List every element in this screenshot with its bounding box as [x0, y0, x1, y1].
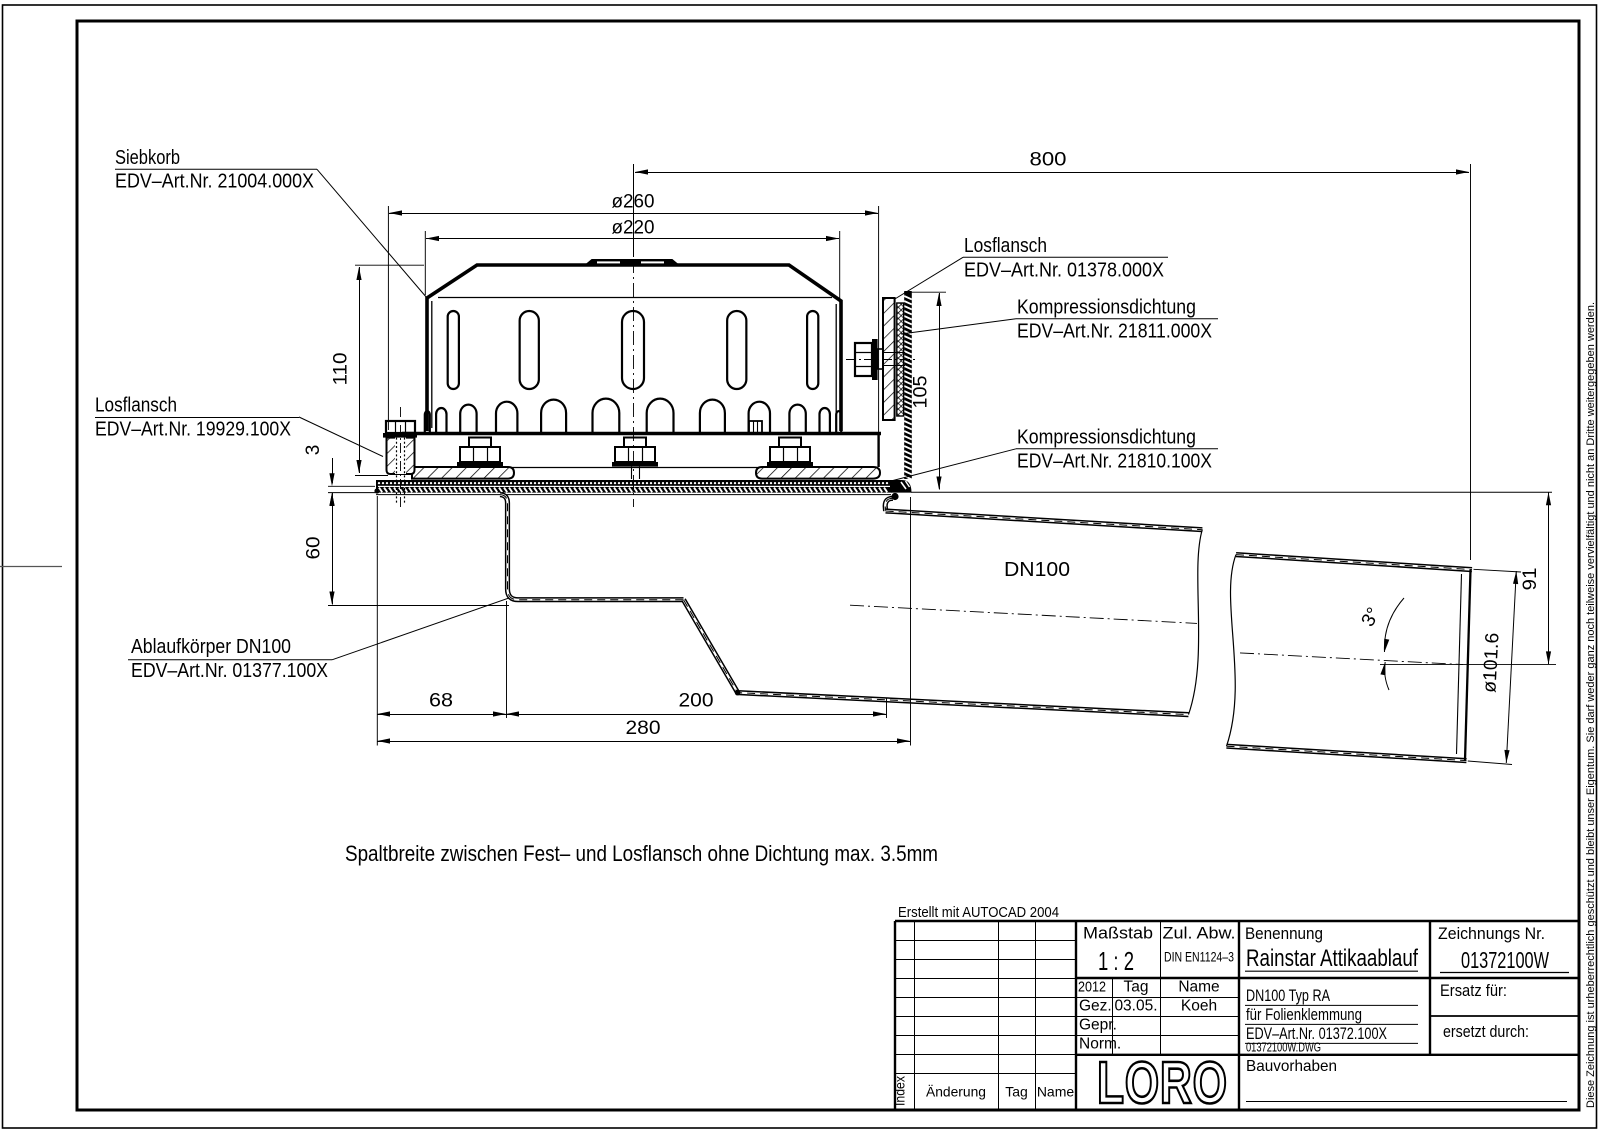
svg-text:Zeichnungs Nr.: Zeichnungs Nr. [1438, 924, 1545, 943]
svg-text:91: 91 [1520, 568, 1541, 591]
svg-text:110: 110 [331, 353, 352, 386]
svg-text:Gez.: Gez. [1079, 998, 1112, 1015]
svg-text:Kompressionsdichtung: Kompressionsdichtung [1017, 297, 1196, 319]
svg-text:Tag: Tag [1124, 979, 1149, 996]
svg-text:Erstellt mit AUTOCAD 2004: Erstellt mit AUTOCAD 2004 [898, 904, 1059, 921]
svg-text:200: 200 [679, 691, 714, 712]
svg-text:Losflansch: Losflansch [95, 395, 177, 417]
svg-text:Ablaufkörper DN100: Ablaufkörper DN100 [131, 636, 291, 658]
svg-text:LORO: LORO [1097, 1051, 1228, 1117]
svg-text:ø101.6: ø101.6 [1479, 632, 1503, 693]
svg-text:DN100 Typ RA: DN100 Typ RA [1246, 986, 1330, 1005]
svg-text:Bauvorhaben: Bauvorhaben [1246, 1058, 1337, 1075]
svg-text:Maßstab: Maßstab [1083, 924, 1153, 943]
svg-text:ø260: ø260 [612, 192, 655, 213]
svg-text:EDV–Art.Nr. 21811.000X: EDV–Art.Nr. 21811.000X [1017, 321, 1212, 343]
svg-text:Tag: Tag [1005, 1084, 1028, 1100]
svg-text:Rainstar Attikaablauf: Rainstar Attikaablauf [1246, 945, 1418, 972]
svg-text:ø220: ø220 [612, 218, 655, 239]
svg-text:03.05.: 03.05. [1114, 998, 1157, 1015]
svg-text:EDV–Art.Nr. 21810.100X: EDV–Art.Nr. 21810.100X [1017, 451, 1212, 473]
svg-text:01372100W: 01372100W [1461, 947, 1549, 973]
svg-text:Koeh: Koeh [1181, 998, 1217, 1015]
svg-text:Index: Index [892, 1076, 908, 1106]
svg-text:105: 105 [911, 376, 932, 409]
svg-text:Name: Name [1178, 979, 1219, 996]
svg-text:Zul. Abw.: Zul. Abw. [1163, 924, 1236, 943]
svg-text:DN100: DN100 [1004, 559, 1070, 581]
svg-text:für Folienklemmung: für Folienklemmung [1246, 1005, 1362, 1024]
svg-text:Ersatz für:: Ersatz für: [1440, 981, 1507, 1000]
svg-text:Norm.: Norm. [1079, 1036, 1121, 1053]
svg-text:Spaltbreite zwischen Fest–: Spaltbreite zwischen Fest– und Losflansc… [345, 841, 938, 866]
svg-text:Änderung: Änderung [926, 1084, 986, 1100]
svg-text:Gepr.: Gepr. [1079, 1017, 1117, 1034]
svg-text:68: 68 [429, 691, 453, 712]
svg-text:EDV–Art.Nr. 01378.000X: EDV–Art.Nr. 01378.000X [964, 260, 1164, 282]
svg-text:DIN EN1124–3: DIN EN1124–3 [1164, 949, 1234, 965]
svg-text:Siebkorb: Siebkorb [115, 147, 180, 169]
svg-text:EDV–Art.Nr. 19929.100X: EDV–Art.Nr. 19929.100X [95, 419, 291, 441]
svg-text:280: 280 [626, 718, 661, 739]
svg-text:1 : 2: 1 : 2 [1098, 946, 1134, 976]
svg-text:Kompressionsdichtung: Kompressionsdichtung [1017, 427, 1196, 449]
svg-text:800: 800 [1030, 150, 1067, 171]
svg-text:Name: Name [1037, 1084, 1075, 1100]
svg-text:3: 3 [303, 445, 324, 456]
svg-text:Benennung: Benennung [1245, 924, 1323, 943]
svg-text:EDV–Art.Nr. 21004.000X: EDV–Art.Nr. 21004.000X [115, 171, 314, 193]
svg-text:01372100W.DWG: 01372100W.DWG [1246, 1041, 1321, 1055]
svg-text:Diese Zeichnung ist urheberrec: Diese Zeichnung ist urheberrechtlich ges… [1585, 302, 1597, 1108]
svg-text:60: 60 [304, 537, 325, 560]
svg-text:Losflansch: Losflansch [964, 235, 1047, 257]
svg-text:ersetzt durch:: ersetzt durch: [1443, 1022, 1529, 1041]
svg-text:2012: 2012 [1078, 979, 1106, 996]
svg-text:EDV–Art.Nr. 01377.100X: EDV–Art.Nr. 01377.100X [131, 660, 328, 682]
